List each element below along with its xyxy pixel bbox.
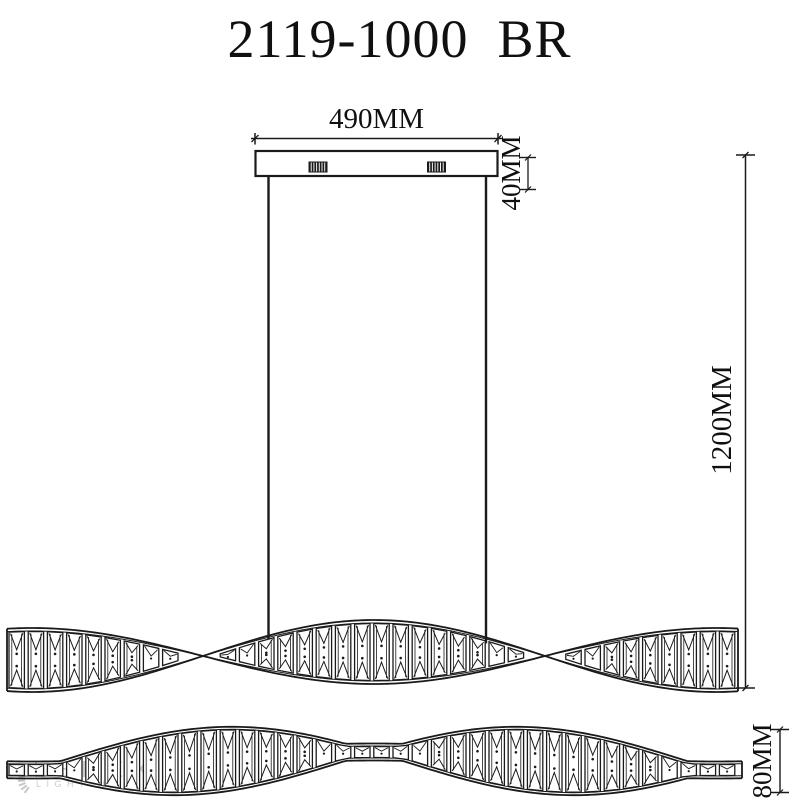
dim-suspension-drop-label: 1200MM (708, 360, 736, 480)
dimension-suspension-drop (736, 152, 755, 691)
product-model-title: 2119-1000 BR (0, 8, 799, 70)
dim-canopy-width-label: 490MM (255, 103, 498, 136)
dim-canopy-height-label: 40MM (497, 133, 525, 213)
dim-body-height-label: 80MM (748, 721, 776, 800)
ceiling-canopy (256, 151, 498, 176)
lamp-rotated-view (7, 727, 742, 795)
product-drawing-page: LEDEX LIGHTING 2119-1000 BR 490MM 40MM 1… (0, 0, 799, 800)
lamp-front-view (7, 620, 738, 692)
